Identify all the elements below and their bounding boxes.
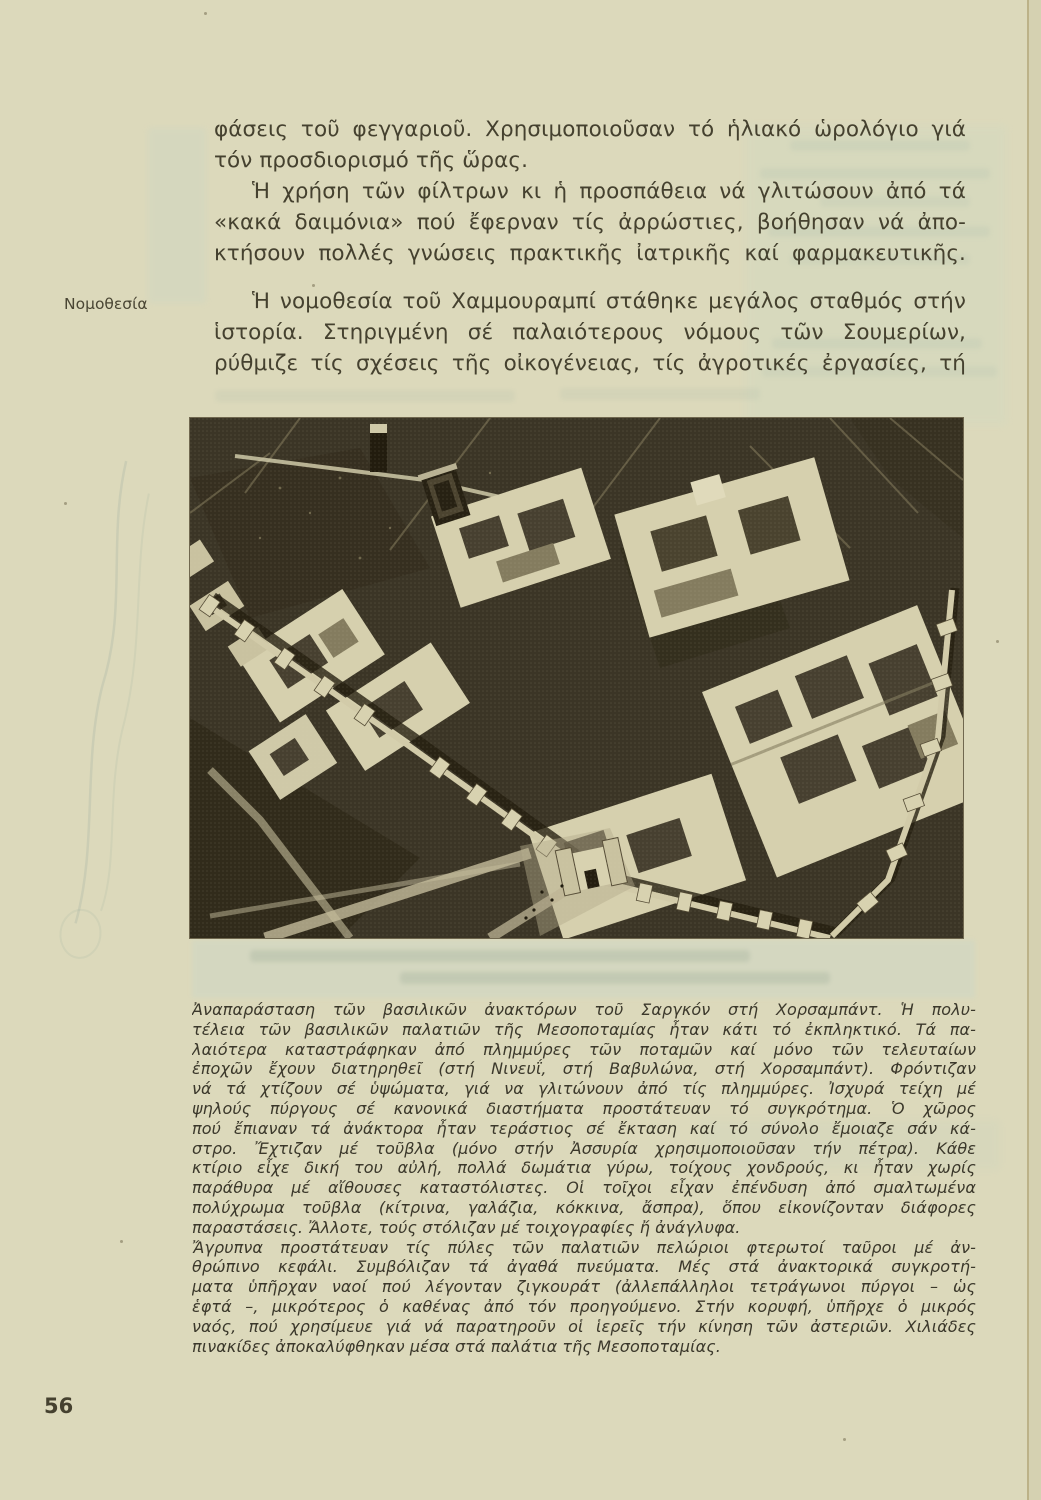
text-line: Ἡ νομοθεσία τοῦ Χαμμουραμπί στάθηκε μεγά… <box>214 286 966 317</box>
photo-caption: Ἀναπαράσταση τῶν βασιλικῶν ἀνακτόρων τοῦ… <box>192 1000 976 1356</box>
text-line: τόν προσδιορισμό τῆς ὥρας. <box>214 145 966 176</box>
paper-speck <box>312 284 315 287</box>
paper-speck <box>996 640 999 643</box>
paper-speck <box>204 12 207 15</box>
text-line: λαιότερα καταστράφηκαν ἀπό πλημμύρες τῶν… <box>192 1040 976 1060</box>
margin-note: Νομοθεσία <box>64 295 148 313</box>
text-line: παράθυρα μέ αἴθουσες καταστόλιστες. Οἱ τ… <box>192 1178 976 1198</box>
text-line: ἐποχῶν ἔχουν διατηρηθεῖ (στή Νινευΐ, στή… <box>192 1059 976 1079</box>
text-line: νά τά χτίζουν σέ ὑψώματα, γιά να γλιτώνο… <box>192 1079 976 1099</box>
law-paragraph-block: Ἡ νομοθεσία τοῦ Χαμμουραμπί στάθηκε μεγά… <box>214 286 966 379</box>
text-line: ναός, πού χρησίμευε γιά νά παρατηροῦν οἱ… <box>192 1317 976 1337</box>
page-edge-line <box>1027 0 1029 1500</box>
text-line: παραστάσεις. Ἄλλοτε, τούς στόλιζαν μέ το… <box>192 1218 976 1238</box>
palace-illustration <box>190 418 963 938</box>
ghost-text-row <box>400 972 830 984</box>
text-line: πού ἔπιαναν τά ἀνάκτορα ἦταν τεράστιος σ… <box>192 1119 976 1139</box>
text-line: στρο. Ἔχτιζαν μέ τοῦβλα (μόνο στήν Ἀσσυρ… <box>192 1139 976 1159</box>
text-line: ἱστορία. Στηριγμένη σέ παλαιότερους νόμο… <box>214 317 966 348</box>
show-through-patch <box>192 940 975 998</box>
book-page: φάσεις τοῦ φεγγαριοῦ. Χρησιμοποιοῦσαν τό… <box>0 0 1041 1500</box>
show-through-patch <box>148 128 206 303</box>
ghost-text-row <box>560 388 760 400</box>
body-text-block: φάσεις τοῦ φεγγαριοῦ. Χρησιμοποιοῦσαν τό… <box>214 114 966 269</box>
text-line: κτίριο εἶχε δική του αὐλή, πολλά δωμάτια… <box>192 1158 976 1178</box>
text-line: πινακίδες ἀποκαλύφθηκαν μέσα στά παλάτια… <box>192 1337 976 1357</box>
text-line: τέλεια τῶν βασιλικῶν παλατιῶν τῆς Μεσοπο… <box>192 1020 976 1040</box>
text-line: ματα ὑπῆρχαν ναοί πού λέγονταν ζιγκουράτ… <box>192 1277 976 1297</box>
palace-illustration-drawing <box>190 418 963 938</box>
margin-handwriting-artifact <box>38 430 168 990</box>
text-line: θρώπινο κεφάλι. Συμβόλιζαν τά ἀγαθά πνεύ… <box>192 1257 976 1277</box>
text-line: Ἡ χρήση τῶν φίλτρων κι ἡ προσπάθεια νά γ… <box>214 176 966 207</box>
paper-speck <box>120 1240 123 1243</box>
text-line: ψηλούς πύργους σέ κανονικά διαστήματα πρ… <box>192 1099 976 1119</box>
text-line: πολύχρωμα τοῦβλα (κίτρινα, γαλάζια, κόκκ… <box>192 1198 976 1218</box>
text-line: κτήσουν πολλές γνώσεις πρακτικῆς ἰατρικῆ… <box>214 238 966 269</box>
paper-speck <box>64 502 67 505</box>
ghost-text-row <box>215 390 515 402</box>
text-line: φάσεις τοῦ φεγγαριοῦ. Χρησιμοποιοῦσαν τό… <box>214 114 966 145</box>
text-line: «κακά δαιμόνια» πού ἔφερναν τίς ἀρρώστιε… <box>214 207 966 238</box>
text-line: Ἄγρυπνα προστάτευαν τίς πύλες τῶν παλατι… <box>192 1238 976 1258</box>
page-number: 56 <box>44 1394 73 1418</box>
text-line: ἑφτά –, μικρότερος ὁ καθένας ἀπό τόν προ… <box>192 1297 976 1317</box>
text-line: ρύθμιζε τίς σχέσεις τῆς οἰκογένειας, τίς… <box>214 348 966 379</box>
text-line: Ἀναπαράσταση τῶν βασιλικῶν ἀνακτόρων τοῦ… <box>192 1000 976 1020</box>
ghost-text-row <box>250 950 750 962</box>
paper-speck <box>843 1438 846 1441</box>
page-edge-strip <box>1029 0 1041 1500</box>
